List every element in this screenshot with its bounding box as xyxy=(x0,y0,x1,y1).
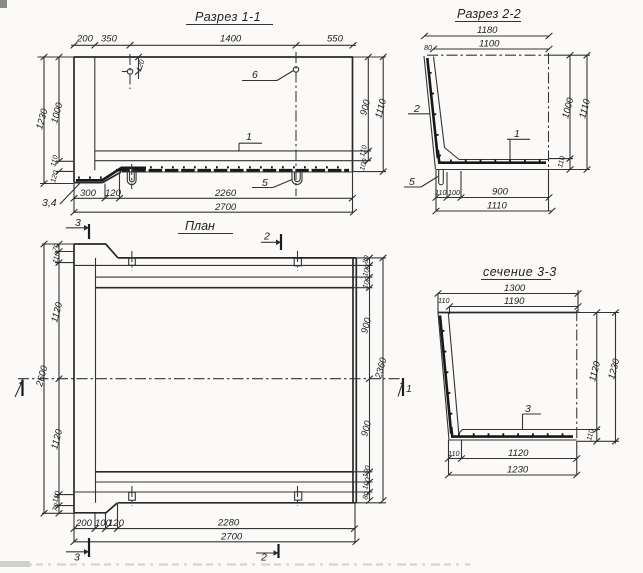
svg-text:5: 5 xyxy=(409,176,415,188)
svg-text:2: 2 xyxy=(413,103,420,115)
svg-text:110: 110 xyxy=(435,188,446,197)
svg-text:300: 300 xyxy=(80,188,97,199)
svg-text:3: 3 xyxy=(75,217,81,229)
svg-text:550: 550 xyxy=(327,34,344,45)
svg-text:1180: 1180 xyxy=(477,25,498,36)
svg-text:2260: 2260 xyxy=(214,188,237,199)
svg-text:80: 80 xyxy=(424,43,432,52)
svg-text:1400: 1400 xyxy=(220,34,242,45)
svg-text:2280: 2280 xyxy=(217,518,240,529)
svg-text:6: 6 xyxy=(252,69,258,81)
svg-text:План: План xyxy=(185,219,215,233)
svg-text:1: 1 xyxy=(406,383,412,395)
svg-text:3,4: 3,4 xyxy=(42,197,57,209)
svg-text:2700: 2700 xyxy=(220,532,243,543)
svg-text:120: 120 xyxy=(108,518,125,529)
svg-text:1110: 1110 xyxy=(487,201,507,212)
svg-text:350: 350 xyxy=(101,34,118,45)
svg-text:3: 3 xyxy=(525,403,531,415)
svg-text:2: 2 xyxy=(263,231,270,243)
svg-text:сечение 3-3: сечение 3-3 xyxy=(483,265,557,279)
svg-text:110: 110 xyxy=(448,449,459,458)
svg-text:110: 110 xyxy=(438,296,449,305)
svg-text:Разрез 1-1: Разрез 1-1 xyxy=(195,10,261,24)
svg-text:2700: 2700 xyxy=(214,202,237,213)
svg-text:1230: 1230 xyxy=(507,465,529,476)
svg-text:1190: 1190 xyxy=(504,296,525,307)
svg-text:200: 200 xyxy=(75,518,93,529)
svg-text:1: 1 xyxy=(246,131,252,143)
svg-text:Разрез 2-2: Разрез 2-2 xyxy=(457,7,521,21)
svg-text:1: 1 xyxy=(514,128,520,140)
svg-text:200: 200 xyxy=(76,34,94,45)
svg-text:1120: 1120 xyxy=(508,448,529,459)
svg-text:120: 120 xyxy=(105,188,122,199)
svg-text:100: 100 xyxy=(448,188,460,197)
svg-text:3: 3 xyxy=(74,552,80,564)
svg-text:1100: 1100 xyxy=(479,39,500,50)
svg-text:900: 900 xyxy=(492,187,509,198)
svg-text:1300: 1300 xyxy=(504,283,526,294)
